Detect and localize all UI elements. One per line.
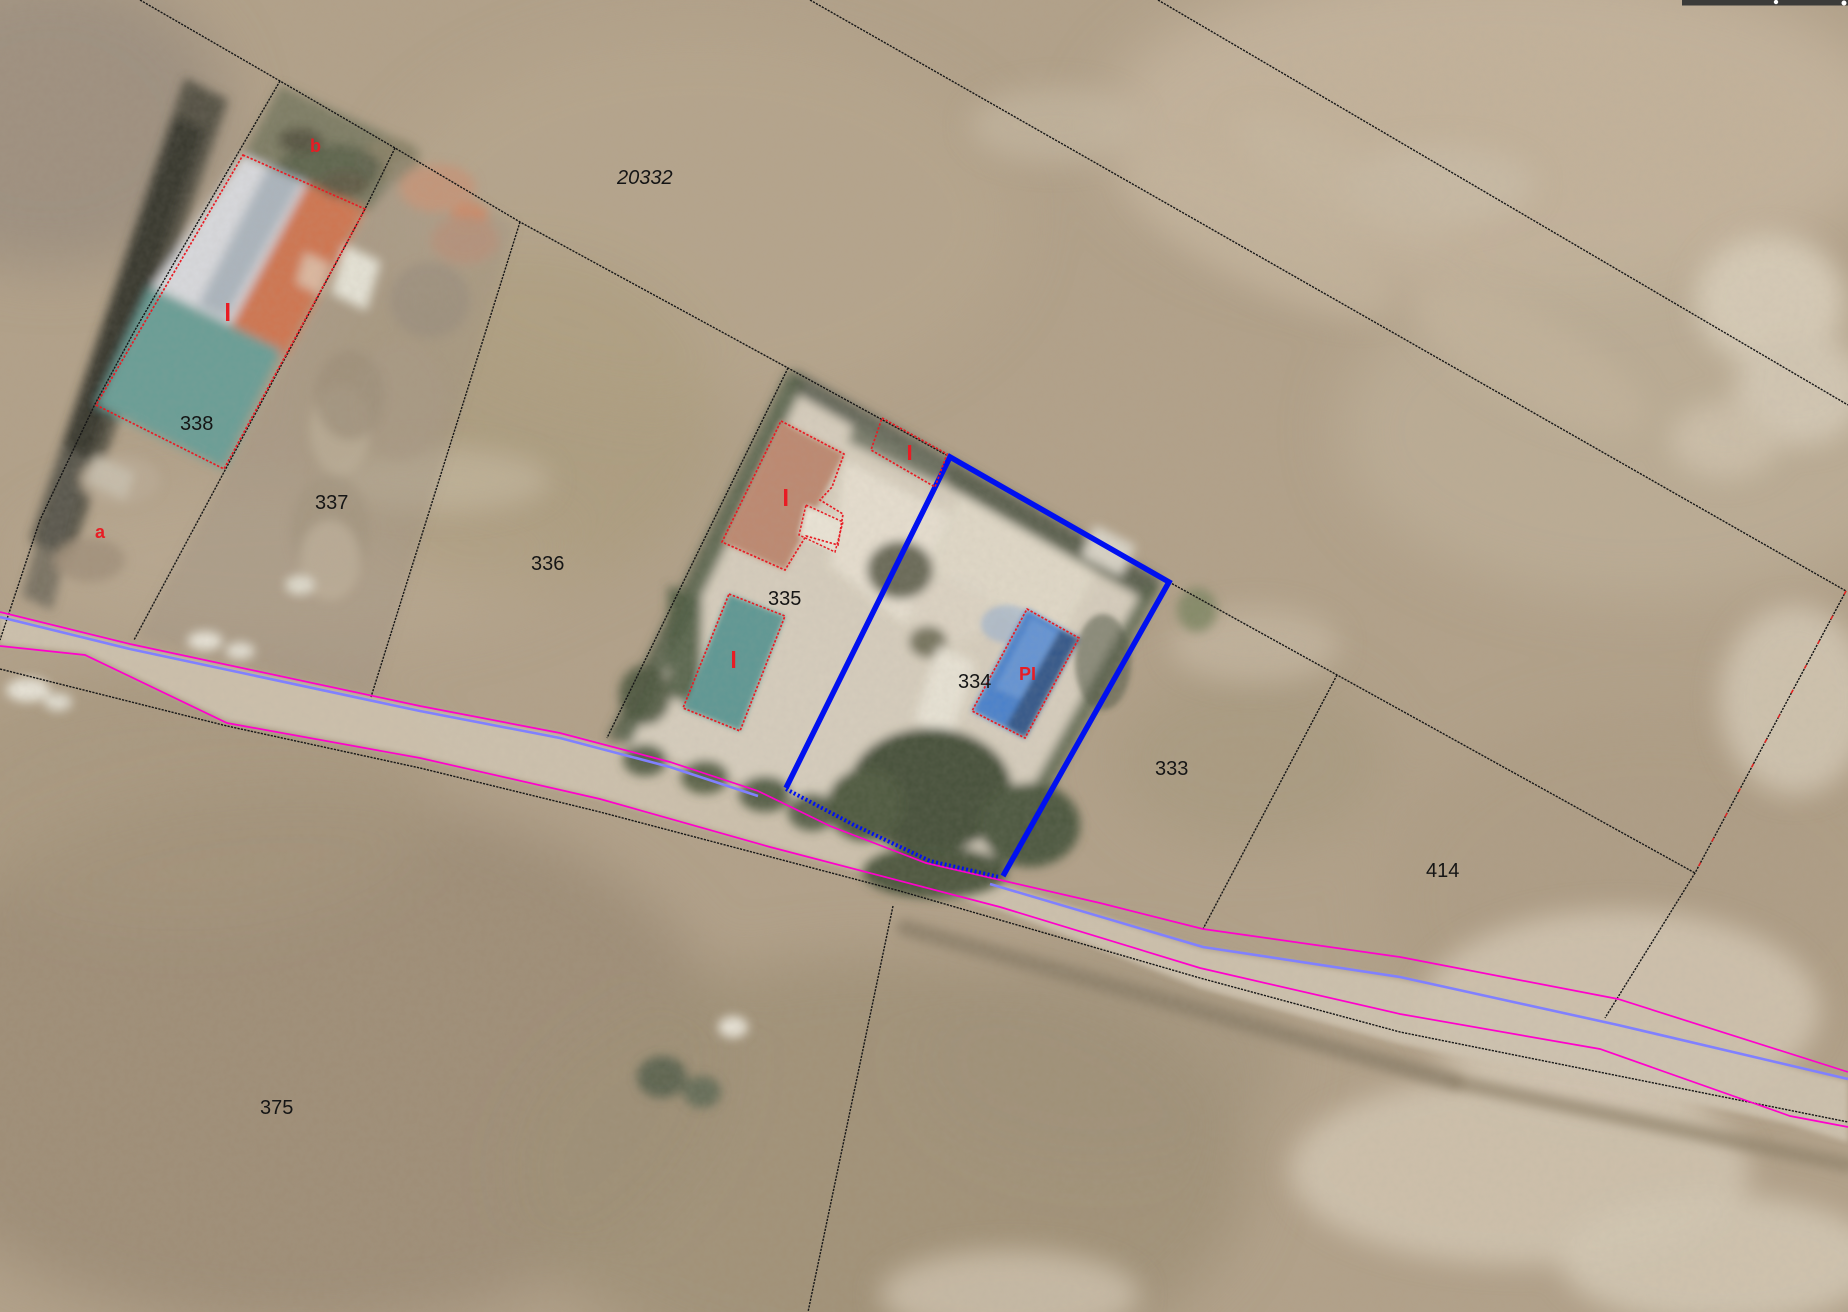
svg-text:375: 375 [260, 1097, 293, 1119]
svg-text:414: 414 [1426, 860, 1459, 882]
svg-text:333: 333 [1155, 758, 1188, 780]
svg-text:20332: 20332 [616, 167, 673, 189]
svg-text:338: 338 [180, 413, 213, 435]
svg-text:334: 334 [958, 671, 991, 693]
svg-text:PI: PI [1019, 664, 1036, 684]
svg-text:a: a [95, 522, 106, 542]
svg-text:b: b [310, 136, 321, 156]
svg-text:337: 337 [315, 492, 348, 514]
svg-text:336: 336 [531, 553, 564, 575]
svg-text:335: 335 [768, 588, 801, 610]
